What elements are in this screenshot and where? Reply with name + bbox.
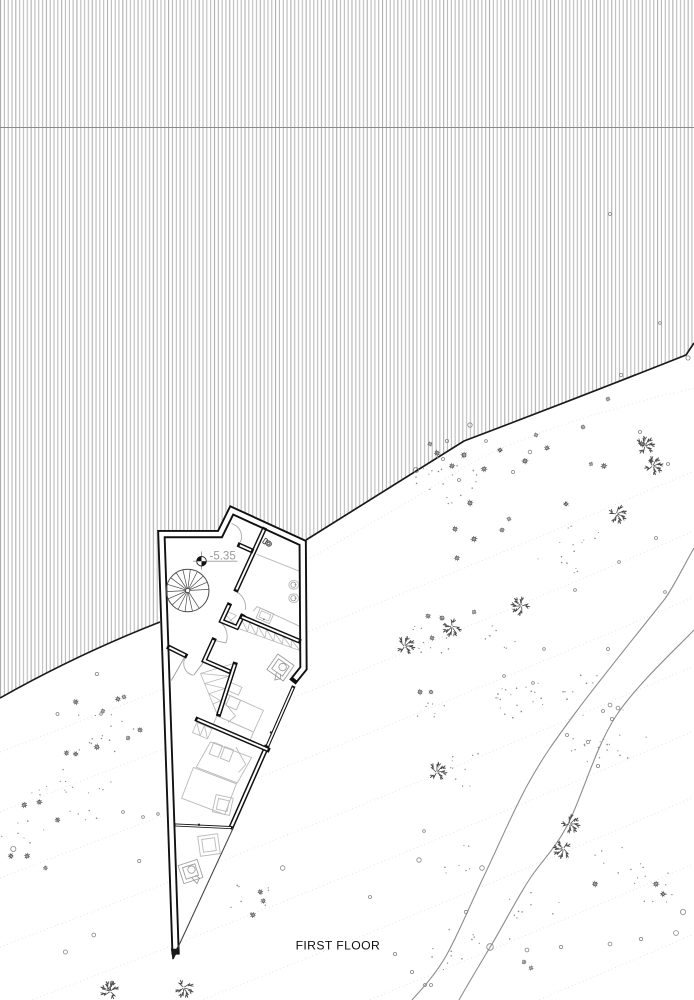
svg-text:FIRST FLOOR: FIRST FLOOR (296, 938, 381, 952)
svg-text:-5.35: -5.35 (210, 550, 236, 562)
